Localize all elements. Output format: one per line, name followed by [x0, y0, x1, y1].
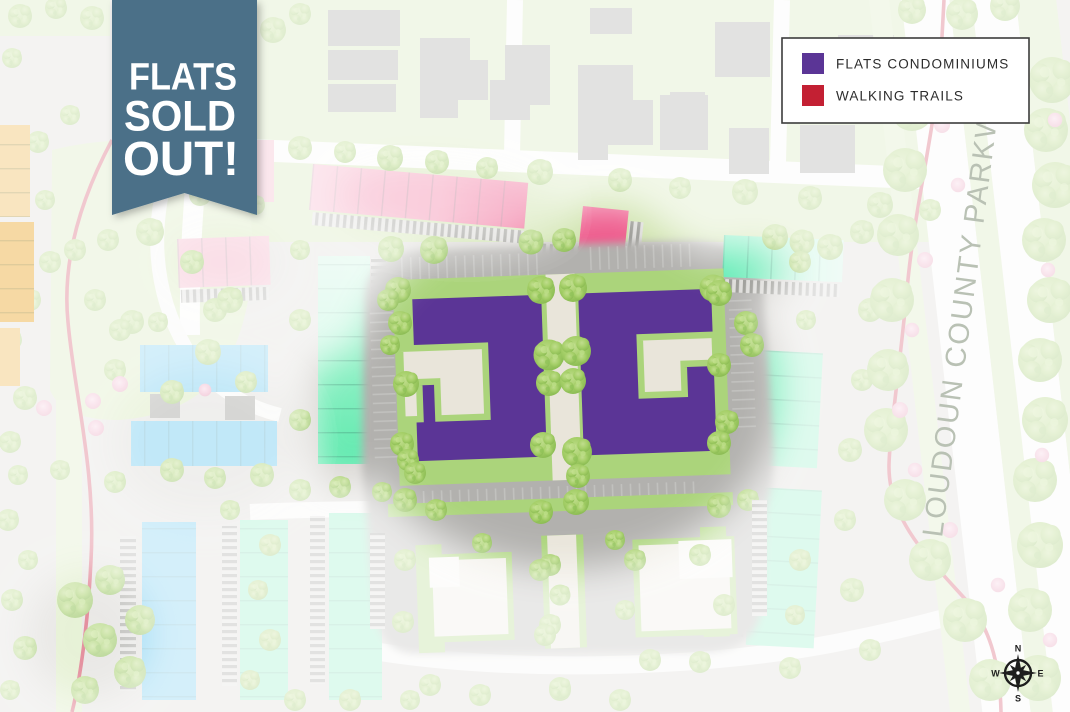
svg-text:FLATS CONDOMINIUMS: FLATS CONDOMINIUMS — [836, 57, 1009, 72]
svg-text:OUT!: OUT! — [123, 133, 239, 186]
svg-text:S: S — [1015, 694, 1021, 704]
svg-text:E: E — [1037, 669, 1043, 679]
svg-text:N: N — [1015, 644, 1022, 654]
svg-text:WALKING TRAILS: WALKING TRAILS — [836, 89, 964, 104]
svg-text:W: W — [991, 669, 1000, 679]
